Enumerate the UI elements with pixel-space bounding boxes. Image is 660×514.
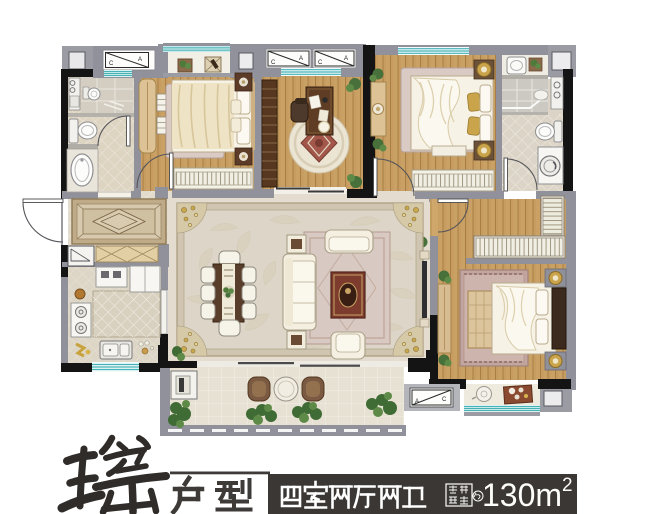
- svg-text:A: A: [138, 57, 142, 63]
- svg-text:C: C: [109, 61, 114, 67]
- svg-text:A: A: [344, 56, 348, 62]
- svg-text:C: C: [318, 60, 323, 66]
- svg-text:130m: 130m: [482, 477, 562, 513]
- svg-text:2: 2: [562, 475, 573, 496]
- svg-text:C: C: [442, 397, 447, 403]
- svg-text:C: C: [271, 60, 276, 66]
- svg-text:A: A: [299, 56, 303, 62]
- svg-text:A: A: [415, 399, 419, 405]
